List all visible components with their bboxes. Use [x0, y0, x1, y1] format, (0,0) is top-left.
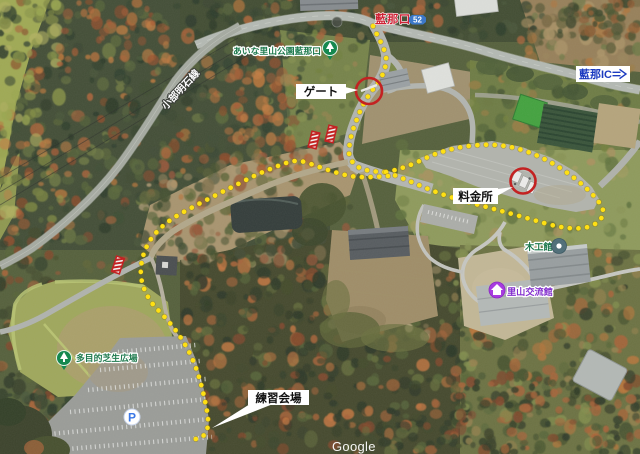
svg-text:料金所: 料金所	[458, 190, 493, 204]
svg-text:木工館: 木工館	[524, 241, 553, 252]
svg-text:多目的芝生広場: 多目的芝生広場	[76, 352, 138, 363]
svg-text:P: P	[128, 411, 136, 425]
svg-text:52: 52	[413, 16, 422, 25]
svg-text:あいな里山公園藍那口: あいな里山公園藍那口	[233, 45, 321, 56]
svg-text:ゲート: ゲート	[304, 85, 339, 99]
svg-text:藍那口: 藍那口	[375, 12, 411, 26]
svg-text:Google: Google	[332, 439, 376, 454]
svg-text:練習会場: 練習会場	[256, 391, 302, 405]
svg-text:里山交流館: 里山交流館	[507, 286, 553, 297]
svg-text:藍那IC: 藍那IC	[579, 67, 612, 81]
